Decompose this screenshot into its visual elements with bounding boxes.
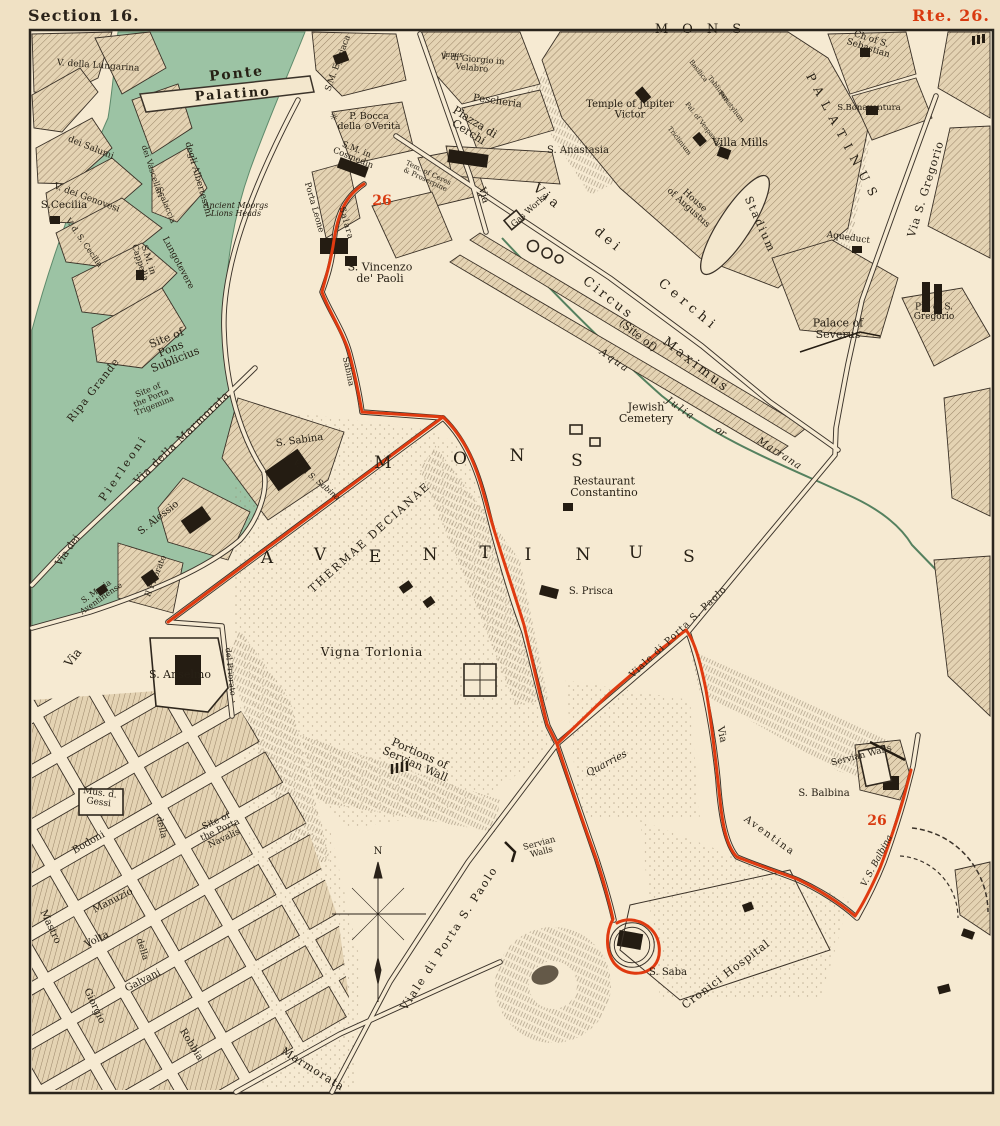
map-label-83: S. Prisca [569, 586, 613, 597]
map-label-103: S. Saba [649, 967, 687, 978]
map-canvas: PontePalatinoV. della Lungarinadei Salum… [0, 0, 1000, 1126]
map-label-113: 26 [867, 813, 886, 829]
map-label-70: A [260, 548, 274, 568]
map-label-33: S. Vincenzode' Paoli [348, 260, 413, 285]
map-label-5: S.Cecilia [41, 199, 88, 211]
map-label-75: I [525, 545, 532, 565]
map-label-28: ☼ [330, 112, 339, 123]
map-label-74: T [479, 543, 491, 563]
testaccio-block [71, 1111, 132, 1126]
map-label-73: N [423, 545, 438, 565]
map-label-78: S [683, 547, 695, 567]
map-label-65: Palace ofSeverus [813, 316, 864, 341]
map-label-86: S. Anselmo [149, 668, 211, 681]
map-label-47: RestaurantConstantino [570, 474, 638, 499]
map-label-112: 26 [372, 193, 391, 209]
map-label-71: V [313, 545, 327, 565]
map-label-110: S. Balbina [798, 788, 849, 799]
map-label-67: O [453, 449, 467, 469]
map-label-61: S.Bonaventura [837, 103, 900, 113]
map-label-76: N [576, 545, 591, 565]
map-label-68: N [510, 446, 525, 466]
map-label-64: Pta di S.Gregorio [914, 302, 955, 321]
map-label-72: E [369, 547, 381, 567]
testaccio-block [0, 907, 14, 962]
map-label-77: U [629, 543, 643, 563]
testaccio-block [0, 1101, 54, 1126]
map-label-114: N [374, 846, 383, 857]
map-label-12: Ancient MoorgsLions Heads [203, 201, 269, 218]
map-label-69: S [571, 451, 583, 471]
testaccio-block [0, 682, 27, 737]
testaccio-block [0, 1019, 7, 1074]
map-label-48: MONS [655, 22, 755, 37]
map-label-84: Vigna Torlonia [320, 645, 424, 659]
map-label-66: M [374, 453, 391, 473]
testaccio-block [0, 1060, 31, 1115]
testaccio-block [0, 795, 21, 850]
map-label-51: S. Anastasia [547, 145, 609, 156]
